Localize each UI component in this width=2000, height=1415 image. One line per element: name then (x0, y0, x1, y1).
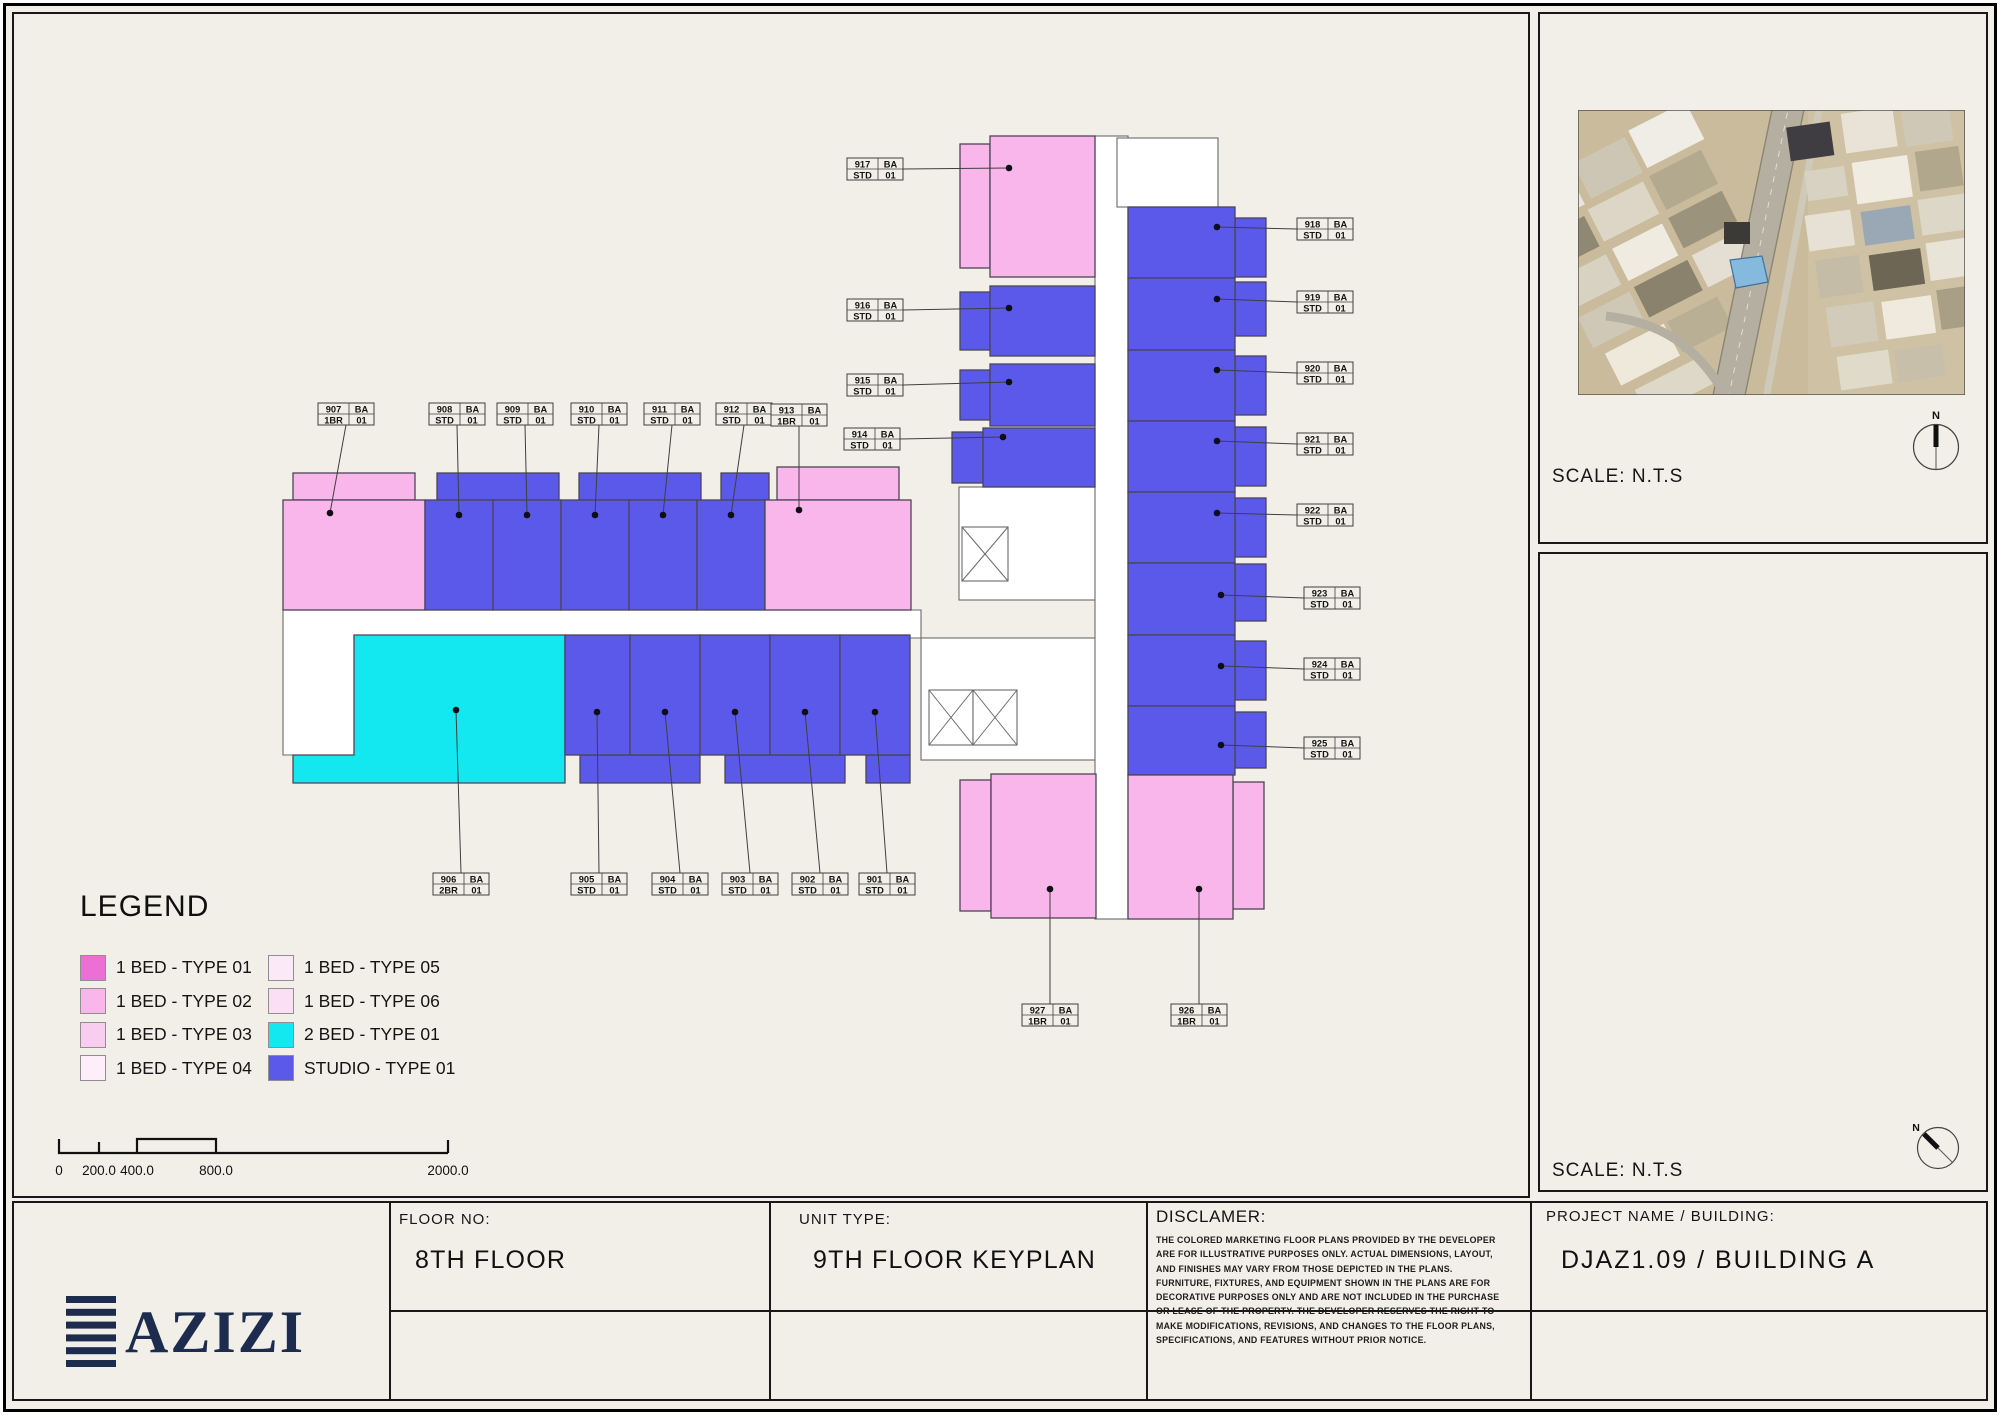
svg-text:01: 01 (535, 415, 545, 425)
svg-text:925: 925 (1312, 739, 1328, 749)
svg-text:01: 01 (1335, 230, 1345, 240)
legend-item: 1 BED - TYPE 06 (268, 988, 456, 1014)
svg-text:01: 01 (1342, 599, 1352, 609)
svg-text:920: 920 (1305, 364, 1321, 374)
svg-text:BA: BA (1341, 739, 1355, 749)
svg-text:01: 01 (1342, 749, 1352, 759)
svg-text:01: 01 (1335, 303, 1345, 313)
unit-919-shape (1128, 278, 1235, 350)
scale-tick-label: 400.0 (120, 1163, 154, 1178)
svg-text:STD: STD (1310, 749, 1329, 759)
svg-text:STD: STD (1303, 516, 1322, 526)
svg-text:907: 907 (326, 405, 342, 415)
legend-swatch (268, 955, 294, 981)
svg-text:902: 902 (800, 875, 816, 885)
scale-bar: 0200.0400.0800.02000.0 (55, 1139, 468, 1178)
svg-text:STD: STD (577, 415, 596, 425)
svg-text:BA: BA (1341, 660, 1355, 670)
svg-text:01: 01 (609, 415, 619, 425)
svg-text:924: 924 (1312, 660, 1328, 670)
svg-text:01: 01 (682, 415, 692, 425)
svg-text:01: 01 (1060, 1016, 1070, 1026)
svg-text:BA: BA (884, 376, 898, 386)
svg-text:BA: BA (470, 875, 484, 885)
floor-no-value: 8TH FLOOR (415, 1246, 566, 1275)
svg-text:909: 909 (505, 405, 521, 415)
legend-label: 1 BED - TYPE 01 (116, 957, 252, 978)
svg-text:905: 905 (579, 875, 595, 885)
svg-text:STD: STD (1310, 670, 1329, 680)
unit-920-shape (1128, 350, 1235, 421)
svg-text:STD: STD (853, 386, 872, 396)
svg-text:STD: STD (853, 311, 872, 321)
svg-text:STD: STD (650, 415, 669, 425)
legend-swatch (80, 988, 106, 1014)
svg-text:01: 01 (1209, 1016, 1219, 1026)
svg-text:01: 01 (1335, 516, 1345, 526)
svg-text:926: 926 (1179, 1006, 1195, 1016)
svg-text:STD: STD (728, 885, 747, 895)
svg-text:BA: BA (355, 405, 369, 415)
unit-907-shape (283, 500, 425, 610)
title-block (12, 1201, 1988, 1401)
svg-text:STD: STD (1303, 303, 1322, 313)
svg-text:01: 01 (885, 386, 895, 396)
svg-text:STD: STD (503, 415, 522, 425)
svg-text:01: 01 (760, 885, 770, 895)
svg-text:923: 923 (1312, 589, 1328, 599)
svg-text:01: 01 (690, 885, 700, 895)
project-name-label: PROJECT NAME / BUILDING: (1546, 1208, 1775, 1225)
svg-text:915: 915 (855, 376, 871, 386)
unit-924-shape (1128, 635, 1235, 706)
unit-922-shape (1128, 492, 1235, 563)
svg-text:BA: BA (829, 875, 843, 885)
floorplan-sheet: 901BASTD01902BASTD01903BASTD01904BASTD01… (0, 0, 2000, 1415)
svg-text:01: 01 (467, 415, 477, 425)
north-arrow-keyplan: N (1912, 1122, 1958, 1169)
svg-text:01: 01 (1342, 670, 1352, 680)
unit-925-shape (1128, 706, 1235, 775)
unit-903-shape (700, 635, 770, 755)
scale-tick-label: 800.0 (199, 1163, 233, 1178)
legend-label: 1 BED - TYPE 03 (116, 1024, 252, 1045)
unit-923-shape (1128, 563, 1235, 635)
svg-text:901: 901 (867, 875, 883, 885)
legend-label: 1 BED - TYPE 02 (116, 991, 252, 1012)
legend-item: 1 BED - TYPE 05 (268, 955, 456, 981)
svg-text:01: 01 (897, 885, 907, 895)
north-arrow-site: N (1914, 410, 1959, 470)
keyplan-scale-note: SCALE: N.T.S (1552, 1160, 1683, 1182)
svg-text:01: 01 (1335, 445, 1345, 455)
unit-902-shape (770, 635, 840, 755)
svg-text:927: 927 (1030, 1006, 1046, 1016)
svg-text:906: 906 (441, 875, 457, 885)
svg-text:BA: BA (884, 301, 898, 311)
svg-text:904: 904 (660, 875, 676, 885)
legend-item: 1 BED - TYPE 04 (80, 1055, 268, 1081)
unit-927-shape (991, 774, 1096, 918)
svg-text:01: 01 (882, 440, 892, 450)
svg-text:1BR: 1BR (324, 415, 343, 425)
svg-text:STD: STD (853, 170, 872, 180)
site-scale-note: SCALE: N.T.S (1552, 466, 1683, 488)
legend-label: 2 BED - TYPE 01 (304, 1024, 440, 1045)
svg-text:STD: STD (577, 885, 596, 895)
svg-text:BA: BA (1334, 293, 1348, 303)
title-block-divider (389, 1203, 391, 1399)
svg-text:BA: BA (1334, 220, 1348, 230)
svg-text:922: 922 (1305, 506, 1321, 516)
svg-text:BA: BA (681, 405, 695, 415)
svg-text:BA: BA (1208, 1006, 1222, 1016)
svg-text:STD: STD (1303, 230, 1322, 240)
scale-tick-label: 200.0 (82, 1163, 116, 1178)
svg-text:BA: BA (534, 405, 548, 415)
svg-text:STD: STD (658, 885, 677, 895)
svg-text:01: 01 (809, 416, 819, 426)
legend-item: 1 BED - TYPE 01 (80, 955, 268, 981)
svg-text:BA: BA (608, 875, 622, 885)
unit-921-shape (1128, 421, 1235, 492)
svg-text:921: 921 (1305, 435, 1321, 445)
svg-text:01: 01 (754, 415, 764, 425)
svg-text:917: 917 (855, 160, 871, 170)
svg-text:913: 913 (779, 406, 795, 416)
unit-916-shape (990, 286, 1095, 356)
svg-text:01: 01 (830, 885, 840, 895)
svg-text:908: 908 (437, 405, 453, 415)
svg-text:01: 01 (1335, 374, 1345, 384)
unit-926-shape (1128, 775, 1233, 919)
svg-text:01: 01 (471, 885, 481, 895)
svg-text:BA: BA (466, 405, 480, 415)
svg-text:918: 918 (1305, 220, 1321, 230)
legend-item: STUDIO - TYPE 01 (268, 1055, 456, 1081)
svg-text:1BR: 1BR (1177, 1016, 1196, 1026)
svg-text:BA: BA (1059, 1006, 1073, 1016)
legend-label: 1 BED - TYPE 06 (304, 991, 440, 1012)
svg-text:STD: STD (1303, 445, 1322, 455)
svg-text:STD: STD (850, 440, 869, 450)
svg-text:BA: BA (1334, 364, 1348, 374)
title-block-divider (1530, 1203, 1532, 1399)
legend: 1 BED - TYPE 011 BED - TYPE 021 BED - TY… (80, 951, 456, 1085)
corner-room (1117, 138, 1218, 207)
unit-913-shape (765, 500, 911, 610)
unit-915-shape (990, 364, 1095, 426)
disclaimer-label: DISCLAMER: (1156, 1207, 1266, 1227)
north-label-site: N (1932, 410, 1940, 422)
svg-text:STD: STD (1303, 374, 1322, 384)
svg-text:BA: BA (753, 405, 767, 415)
legend-item: 1 BED - TYPE 03 (80, 1022, 268, 1048)
disclaimer-text: THE COLORED MARKETING FLOOR PLANS PROVID… (1156, 1233, 1504, 1347)
svg-text:914: 914 (852, 430, 868, 440)
svg-text:STD: STD (435, 415, 454, 425)
scale-tick-label: 2000.0 (427, 1163, 468, 1178)
legend-label: 1 BED - TYPE 05 (304, 957, 440, 978)
svg-text:STD: STD (798, 885, 817, 895)
legend-item: 2 BED - TYPE 01 (268, 1022, 456, 1048)
legend-swatch (268, 988, 294, 1014)
brand-name: AZIZI (125, 1302, 305, 1362)
svg-text:1BR: 1BR (1028, 1016, 1047, 1026)
svg-text:STD: STD (865, 885, 884, 895)
svg-text:BA: BA (1334, 506, 1348, 516)
svg-text:910: 910 (579, 405, 595, 415)
svg-text:919: 919 (1305, 293, 1321, 303)
svg-text:BA: BA (881, 430, 895, 440)
legend-swatch (80, 1022, 106, 1048)
svg-text:BA: BA (808, 406, 822, 416)
legend-item: 1 BED - TYPE 02 (80, 988, 268, 1014)
azizi-logo: AZIZI (66, 1296, 305, 1367)
svg-text:01: 01 (356, 415, 366, 425)
svg-text:1BR: 1BR (777, 416, 796, 426)
title-block-divider (1146, 1203, 1148, 1399)
legend-title: LEGEND (80, 890, 209, 924)
legend-label: 1 BED - TYPE 04 (116, 1058, 252, 1079)
svg-text:STD: STD (722, 415, 741, 425)
unit-917-shape (990, 136, 1095, 277)
elevator-cores (929, 527, 1017, 745)
legend-swatch (80, 955, 106, 981)
svg-text:BA: BA (1341, 589, 1355, 599)
legend-swatch (268, 1022, 294, 1048)
corridor-right-wing (1095, 136, 1128, 919)
north-label-keyplan: N (1912, 1122, 1920, 1134)
scale-tick-label: 0 (55, 1163, 63, 1178)
svg-text:01: 01 (885, 311, 895, 321)
unit-904-shape (630, 635, 700, 755)
project-name-value: DJAZ1.09 / BUILDING A (1561, 1246, 1875, 1275)
svg-text:BA: BA (608, 405, 622, 415)
svg-text:911: 911 (652, 405, 667, 415)
svg-text:STD: STD (1310, 599, 1329, 609)
svg-text:BA: BA (884, 160, 898, 170)
legend-swatch (80, 1055, 106, 1081)
svg-text:01: 01 (885, 170, 895, 180)
unit-918-shape (1128, 207, 1235, 278)
svg-text:BA: BA (759, 875, 773, 885)
unit-901-shape (840, 635, 910, 755)
svg-text:01: 01 (609, 885, 619, 895)
unit-type-label: UNIT TYPE: (799, 1211, 891, 1228)
svg-text:BA: BA (896, 875, 910, 885)
svg-text:912: 912 (724, 405, 740, 415)
svg-text:BA: BA (1334, 435, 1348, 445)
floor-no-label: FLOOR NO: (399, 1211, 491, 1228)
azizi-logo-icon (66, 1296, 116, 1367)
legend-label: STUDIO - TYPE 01 (304, 1058, 455, 1079)
title-block-divider (769, 1203, 771, 1399)
svg-text:BA: BA (689, 875, 703, 885)
unit-type-value: 9TH FLOOR KEYPLAN (813, 1246, 1096, 1275)
svg-text:903: 903 (730, 875, 746, 885)
legend-swatch (268, 1055, 294, 1081)
svg-text:2BR: 2BR (439, 885, 458, 895)
svg-text:916: 916 (855, 301, 871, 311)
